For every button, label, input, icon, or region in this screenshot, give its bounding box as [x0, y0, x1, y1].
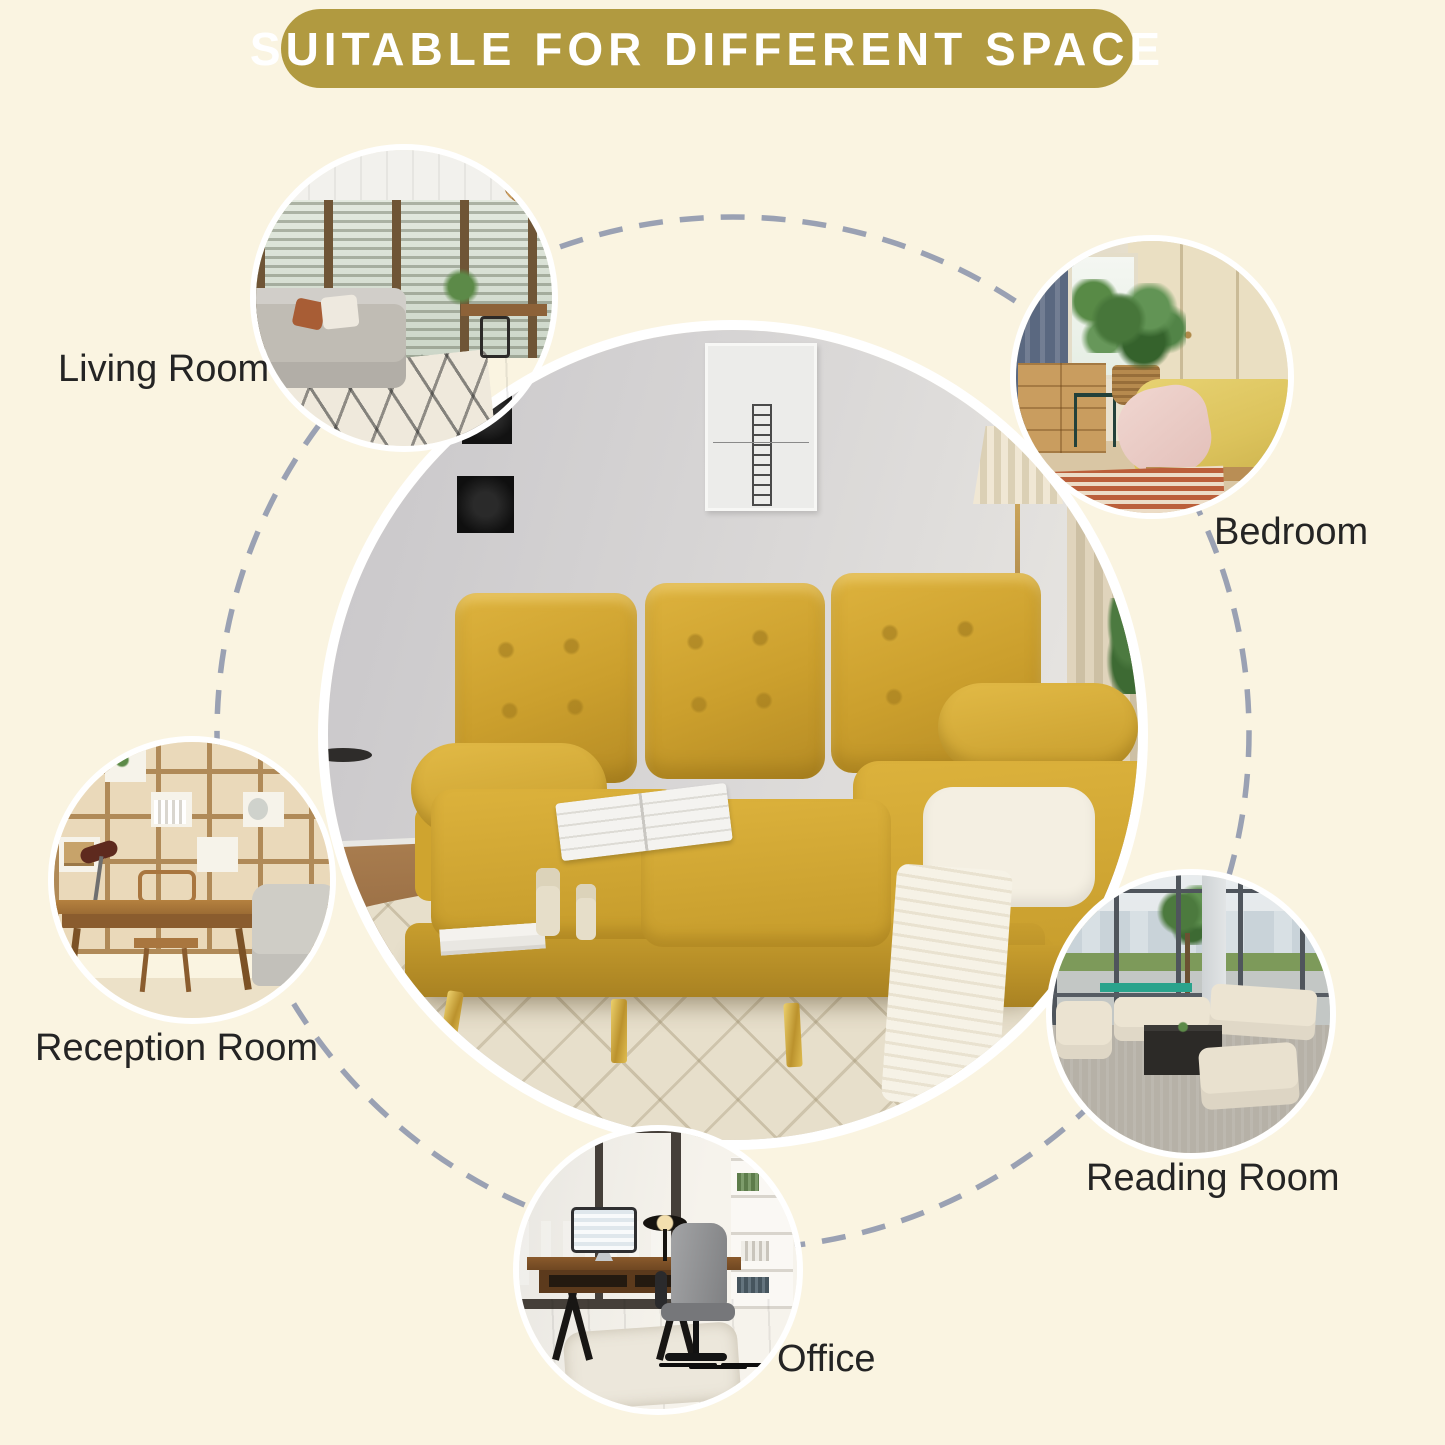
- arm-pillow: [938, 683, 1138, 771]
- title-banner: SUITABLE FOR DIFFERENT SPACE: [281, 9, 1134, 88]
- gray-armchair: [252, 884, 330, 986]
- cream-armchair: [1056, 1001, 1112, 1059]
- blanket-tassel: [899, 1105, 908, 1114]
- wooden-desk: [56, 900, 262, 914]
- window-beam: [1052, 889, 1330, 893]
- wooden-chair-back: [138, 870, 196, 904]
- table-plant: [1176, 1021, 1190, 1033]
- dining-chair: [480, 316, 510, 358]
- shelf-cell: [197, 837, 238, 872]
- books: [741, 1241, 769, 1261]
- books: [154, 800, 186, 824]
- office-chair-post: [693, 1321, 699, 1355]
- throw-blanket-drape: [881, 863, 1013, 1109]
- reception-room-photo: [54, 742, 330, 1018]
- shelf-plant: [112, 752, 132, 768]
- office-chair-base: [665, 1353, 727, 1361]
- label-reading-room: Reading Room: [1086, 1157, 1339, 1200]
- wall-art-square: [457, 476, 514, 533]
- candlestick: [576, 884, 596, 940]
- infographic-canvas: SUITABLE FOR DIFFERENT SPACE Living Room…: [0, 0, 1445, 1445]
- computer-monitor: [571, 1207, 637, 1253]
- label-office: Office: [777, 1338, 876, 1381]
- blanket-tassel: [929, 1113, 938, 1122]
- teal-bench: [1100, 983, 1192, 992]
- picture-frame: [705, 343, 817, 511]
- label-living-room: Living Room: [58, 348, 269, 391]
- cream-armchair: [1198, 1042, 1300, 1111]
- shelf-plant: [731, 1135, 761, 1157]
- reading-room-photo: [1052, 875, 1330, 1153]
- candlestick: [536, 868, 560, 936]
- plant-stand: [1074, 393, 1116, 447]
- chair-seat: [134, 938, 198, 948]
- potted-plant: [1090, 283, 1186, 375]
- title-text: SUITABLE FOR DIFFERENT SPACE: [250, 22, 1165, 76]
- books: [737, 1173, 759, 1191]
- striped-rug: [1039, 466, 1224, 513]
- label-bedroom: Bedroom: [1214, 511, 1368, 554]
- bedroom-photo: [1016, 241, 1288, 513]
- office-chair-seat: [661, 1303, 735, 1321]
- ladder-artwork: [752, 404, 772, 506]
- dining-table: [461, 304, 547, 316]
- pendant-lamp: [504, 162, 552, 204]
- office-photo: [519, 1131, 797, 1409]
- back-cushion: [645, 583, 825, 779]
- gold-leg: [611, 999, 627, 1063]
- white-pillow: [320, 294, 359, 330]
- living-room-photo: [256, 150, 552, 446]
- desk-apron: [62, 914, 256, 928]
- cream-sofa: [1208, 983, 1317, 1040]
- books: [737, 1277, 769, 1293]
- blanket-tassel: [963, 1107, 972, 1116]
- office-chair-back: [671, 1223, 727, 1311]
- shag-rug: [562, 1321, 741, 1409]
- ornament: [248, 798, 268, 820]
- desk-lamp-stem: [663, 1229, 667, 1261]
- artwork-line: [713, 442, 809, 443]
- gold-leg: [783, 1003, 802, 1068]
- label-reception-room: Reception Room: [35, 1027, 318, 1070]
